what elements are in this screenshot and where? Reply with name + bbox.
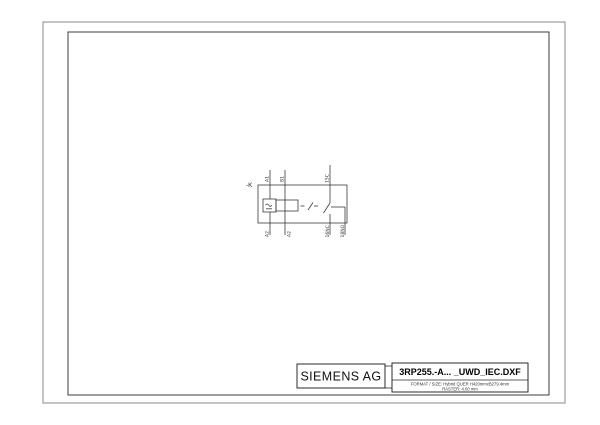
terminal-label-b1: B1 [280, 176, 286, 182]
drawing-page: -K A1 B1 15C A2 A2 16NC 18NO SIEMENS AG … [0, 0, 600, 425]
coil-body-box [276, 200, 298, 211]
page-inner-border [68, 32, 549, 395]
coil-symbol-box [263, 199, 276, 212]
terminal-label-16nc: 16NC [325, 225, 331, 237]
contact-blade [324, 203, 331, 213]
drawing-svg: -K A1 B1 15C A2 A2 16NC 18NO SIEMENS AG … [0, 0, 600, 425]
terminal-label-a1: A1 [265, 176, 271, 182]
relay-schematic [258, 165, 347, 235]
drawing-name: 3RP255.-A... _UWD_IEC.DXF [399, 367, 521, 377]
terminal-label-18no: 18NO [340, 224, 346, 237]
title-block: SIEMENS AG 3RP255.-A... _UWD_IEC.DXF FOR… [297, 363, 528, 392]
page-outer-border [43, 22, 565, 403]
company-name: SIEMENS AG [300, 370, 381, 384]
relay-outline-box [258, 185, 347, 223]
terminal-label-15c: 15C [325, 174, 331, 183]
terminal-label-a2-1: A2 [265, 231, 271, 237]
raster-line: RASTER: 4.00 mm [442, 387, 478, 392]
terminal-label-a2-2: A2 [287, 231, 293, 237]
delay-tick-icon [308, 203, 313, 211]
ac-wave-icon [266, 204, 272, 206]
device-tag-label: -K [246, 182, 253, 189]
